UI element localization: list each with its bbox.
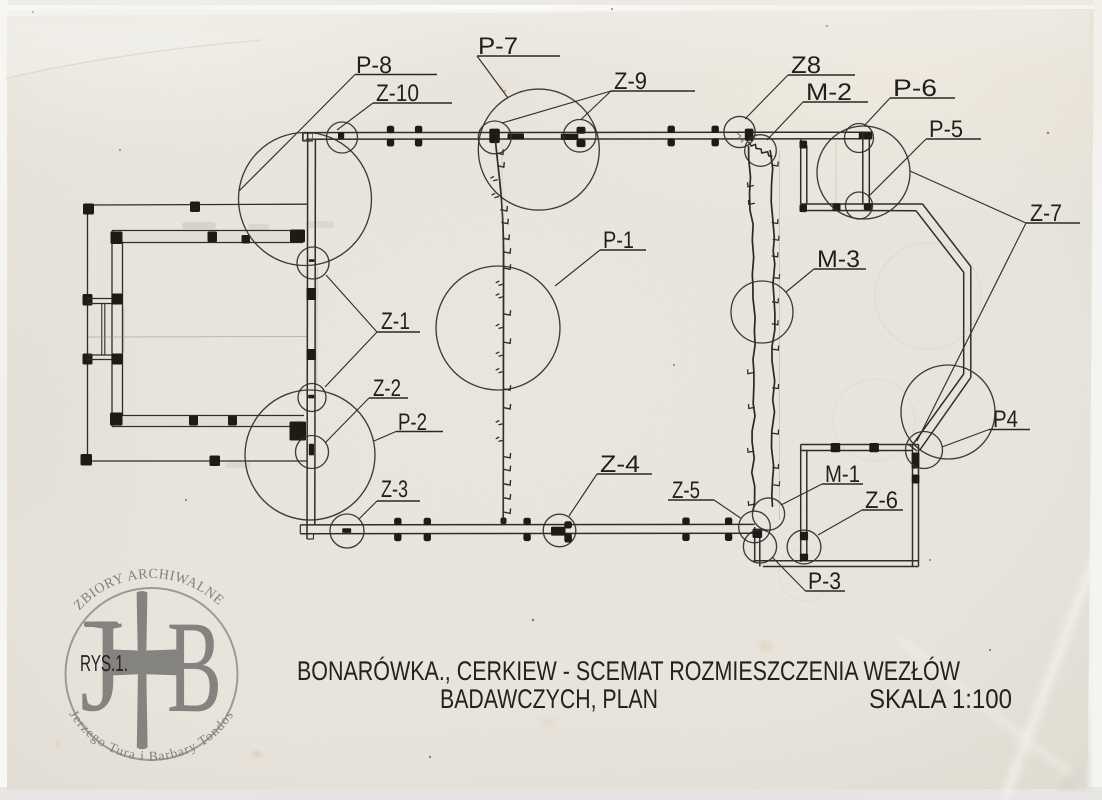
svg-text:P-5: P-5 xyxy=(929,116,963,143)
svg-text:P-6: P-6 xyxy=(893,75,937,102)
svg-text:Z-1: Z-1 xyxy=(381,308,410,335)
svg-text:P-1: P-1 xyxy=(603,227,634,254)
svg-text:Z-2: Z-2 xyxy=(373,375,401,402)
svg-text:Z-9: Z-9 xyxy=(614,68,647,95)
svg-text:BADAWCZYCH, PLAN: BADAWCZYCH, PLAN xyxy=(440,684,658,714)
svg-text:Z-4: Z-4 xyxy=(600,451,640,478)
svg-text:P-8: P-8 xyxy=(356,52,392,79)
svg-text:BONARÓWKA., CERKIEW - SCEMAT R: BONARÓWKA., CERKIEW - SCEMAT ROZMIESZCZE… xyxy=(297,656,960,686)
svg-text:M-2: M-2 xyxy=(806,79,852,106)
svg-text:Z-3: Z-3 xyxy=(381,476,408,503)
svg-text:P-3: P-3 xyxy=(808,568,841,595)
svg-text:Z8: Z8 xyxy=(791,52,821,79)
svg-text:P4: P4 xyxy=(993,406,1018,433)
svg-text:SKALA 1:100: SKALA 1:100 xyxy=(869,684,1012,714)
svg-text:M-1: M-1 xyxy=(825,461,860,488)
svg-text:Z-7: Z-7 xyxy=(1030,200,1062,227)
svg-text:Z-6: Z-6 xyxy=(865,487,898,514)
svg-text:Z-5: Z-5 xyxy=(672,477,700,504)
svg-text:Z-10: Z-10 xyxy=(376,80,419,107)
svg-text:P-7: P-7 xyxy=(478,33,518,60)
svg-text:M-3: M-3 xyxy=(817,246,860,273)
svg-text:RYS.1.: RYS.1. xyxy=(80,650,128,676)
svg-text:P-2: P-2 xyxy=(398,409,427,436)
